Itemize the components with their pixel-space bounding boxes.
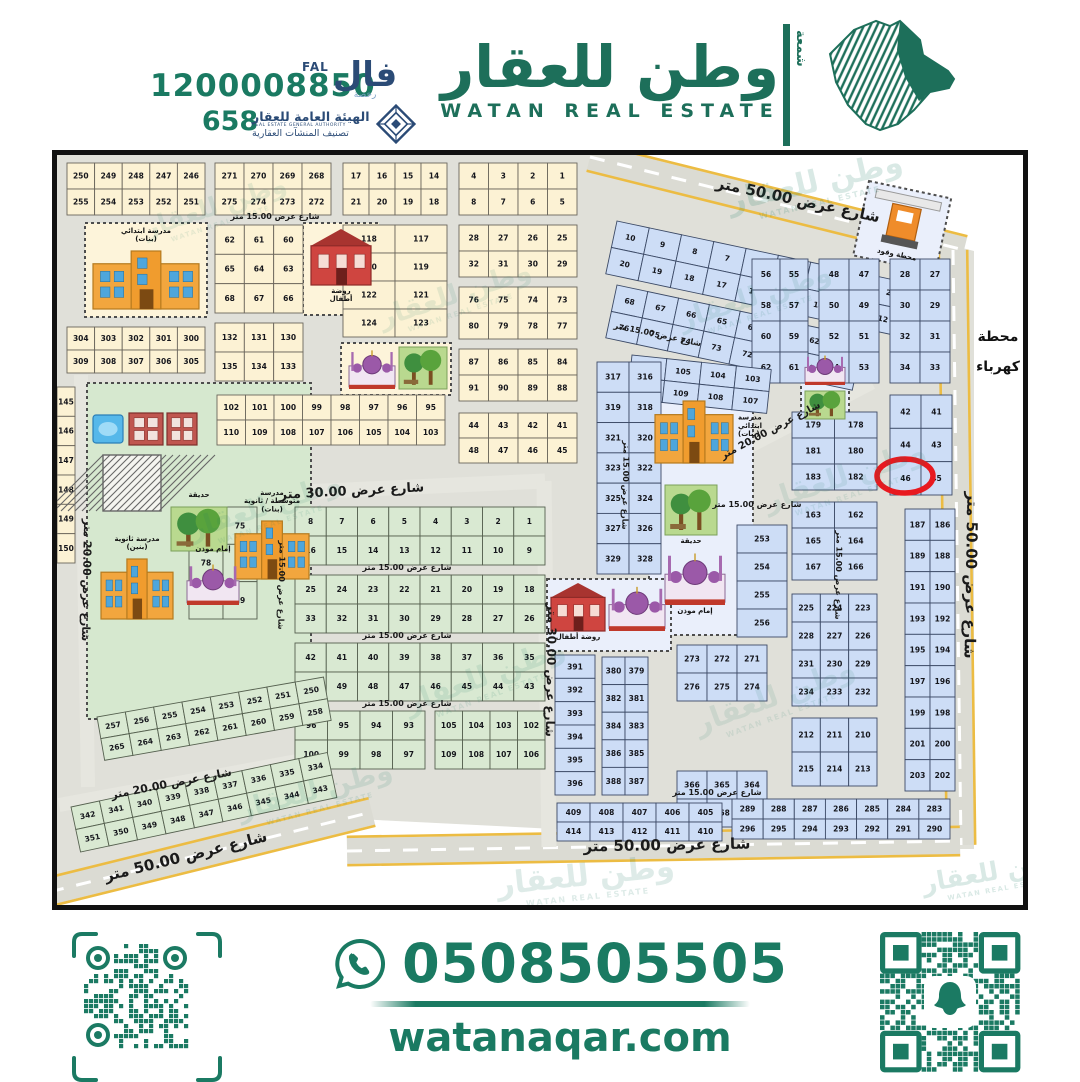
svg-text:102: 102 [523,721,539,730]
svg-text:103: 103 [423,428,439,437]
svg-text:10: 10 [493,546,503,555]
svg-text:89: 89 [528,384,538,393]
svg-text:32: 32 [337,614,347,623]
svg-text:41: 41 [337,653,347,662]
plots-map: 2502492482472462552542532522512712702692… [52,150,1028,910]
svg-text:4: 4 [433,517,438,526]
svg-text:27: 27 [498,234,508,243]
qr-code-snapchat[interactable] [876,928,1024,1076]
svg-text:393: 393 [567,709,583,718]
svg-text:117: 117 [413,235,429,244]
svg-text:384: 384 [606,722,622,731]
svg-text:30: 30 [399,614,409,623]
svg-text:284: 284 [895,805,911,814]
svg-text:134: 134 [251,362,267,371]
svg-text:275: 275 [714,683,730,692]
svg-text:164: 164 [848,537,864,546]
svg-text:12: 12 [430,546,440,555]
svg-text:192: 192 [935,614,951,623]
svg-text:252: 252 [156,198,172,207]
svg-text:107: 107 [742,395,759,406]
svg-text:18: 18 [429,198,439,207]
svg-text:99: 99 [339,750,349,759]
fal-logo-sub: رخصة [354,90,377,100]
svg-text:193: 193 [910,614,926,623]
svg-text:304: 304 [73,334,89,343]
plot-block: 25242322212019183332313029282726 [295,575,545,633]
edge-station-label: كهرباء [976,359,1021,375]
svg-text:270: 270 [251,172,267,181]
svg-text:28: 28 [900,270,910,279]
svg-text:106: 106 [523,750,539,759]
svg-text:386: 386 [606,749,622,758]
svg-text:100: 100 [280,403,296,412]
svg-text:73: 73 [557,296,567,305]
svg-text:320: 320 [637,433,653,442]
svg-text:212: 212 [798,731,814,740]
svg-text:99: 99 [312,403,322,412]
svg-text:15: 15 [337,546,347,555]
svg-text:228: 228 [798,632,814,641]
svg-text:16: 16 [377,172,387,181]
svg-text:21: 21 [430,585,440,594]
svg-text:286: 286 [833,805,849,814]
svg-text:إمام موذن: إمام موذن [677,607,712,615]
svg-text:96: 96 [397,403,407,412]
svg-text:45: 45 [462,682,472,691]
svg-text:20: 20 [377,198,387,207]
footer-phone[interactable]: 0508505505 [402,932,788,995]
svg-text:5: 5 [402,517,407,526]
svg-text:306: 306 [156,357,172,366]
svg-text:105: 105 [366,428,382,437]
svg-text:78: 78 [528,322,538,331]
svg-text:294: 294 [802,825,818,834]
authority-logo: الهيئة العامة للعقار REAL ESTATE GENERAL… [252,104,416,144]
svg-text:1: 1 [527,517,532,526]
svg-text:33: 33 [930,363,940,372]
svg-text:178: 178 [848,421,864,430]
svg-text:17: 17 [351,172,361,181]
svg-text:42: 42 [528,421,538,430]
svg-text:68: 68 [224,294,234,303]
svg-text:196: 196 [935,677,951,686]
header: 1200008850 658 FAL فال رخصة الهيئة العام… [0,0,1080,150]
svg-text:108: 108 [280,428,296,437]
svg-text:123: 123 [413,319,429,328]
svg-text:38: 38 [430,653,440,662]
svg-text:86: 86 [498,358,508,367]
svg-text:105: 105 [675,366,692,377]
svg-text:8: 8 [471,198,476,207]
svg-text:319: 319 [605,403,621,412]
svg-text:46: 46 [900,474,910,483]
svg-text:33: 33 [305,614,315,623]
svg-text:413: 413 [599,827,615,836]
brand-divider-bar [783,24,790,146]
svg-text:272: 272 [714,655,730,664]
svg-text:291: 291 [895,825,911,834]
svg-text:57: 57 [789,301,799,310]
svg-text:288: 288 [771,805,787,814]
svg-text:250: 250 [73,172,89,181]
svg-text:74: 74 [528,296,538,305]
svg-text:84: 84 [557,358,567,367]
svg-text:186: 186 [935,520,951,529]
svg-text:29: 29 [430,614,440,623]
svg-text:21: 21 [351,198,361,207]
svg-text:198: 198 [935,708,951,717]
svg-text:25: 25 [305,585,315,594]
svg-text:87: 87 [469,358,479,367]
svg-text:19: 19 [403,198,413,207]
svg-text:251: 251 [183,198,199,207]
svg-text:(بنات): (بنات) [135,235,157,243]
svg-text:256: 256 [754,619,770,628]
svg-text:292: 292 [864,825,880,834]
plot-block: 1871861891881911901931921951941971961991… [905,509,955,791]
svg-text:131: 131 [251,333,267,342]
svg-text:105: 105 [441,721,457,730]
plot-block: 105104103102109108107106 [435,711,545,769]
water-icon [93,415,123,443]
svg-text:414: 414 [566,827,582,836]
plot-block: 273272271276275274 [677,645,767,701]
svg-text:40: 40 [368,653,378,662]
svg-text:مدرسة: مدرسة [738,414,762,422]
svg-text:133: 133 [281,362,297,371]
svg-text:167: 167 [805,563,821,572]
svg-text:407: 407 [632,808,648,817]
fal-logo-ar: فال [333,60,398,90]
svg-text:214: 214 [827,765,843,774]
svg-text:98: 98 [371,750,381,759]
svg-text:308: 308 [101,357,117,366]
brand-name-en: WATAN REAL ESTATE [440,100,779,122]
svg-text:18: 18 [524,585,534,594]
plot-block: 8786858491908988 [459,349,577,401]
svg-text:79: 79 [498,322,508,331]
svg-text:382: 382 [606,694,622,703]
svg-text:147: 147 [58,456,74,465]
svg-text:28: 28 [462,614,472,623]
svg-text:52: 52 [829,332,839,341]
svg-text:323: 323 [605,464,621,473]
svg-text:247: 247 [156,172,172,181]
svg-text:180: 180 [848,447,864,456]
svg-text:حديقة: حديقة [681,537,702,545]
plot-block: 250249248247246255254253252251 [67,163,205,215]
svg-text:322: 322 [637,464,653,473]
qr-code-left[interactable] [72,932,222,1082]
svg-text:1: 1 [560,172,565,181]
svg-text:75: 75 [498,296,508,305]
svg-text:194: 194 [935,646,951,655]
svg-text:392: 392 [567,686,583,695]
svg-text:2: 2 [530,172,535,181]
svg-text:121: 121 [413,291,429,300]
svg-text:65: 65 [224,265,234,274]
svg-text:409: 409 [566,808,582,817]
svg-text:14: 14 [368,546,378,555]
svg-text:(بنات): (بنات) [261,505,283,513]
svg-text:285: 285 [864,805,880,814]
svg-text:107: 107 [496,750,512,759]
svg-text:195: 195 [910,646,926,655]
svg-text:309: 309 [73,357,89,366]
svg-text:109: 109 [441,750,457,759]
svg-text:106: 106 [337,428,353,437]
svg-text:182: 182 [848,473,864,482]
svg-text:27: 27 [493,614,503,623]
svg-text:31: 31 [930,332,940,341]
svg-text:395: 395 [567,756,583,765]
plot-block: 42414039383736355049484746454443 [295,643,545,701]
svg-text:47: 47 [859,270,869,279]
svg-text:39: 39 [399,653,409,662]
street-label: شارع عرض 15.00 متر [361,631,451,641]
svg-text:405: 405 [698,808,714,817]
svg-text:271: 271 [744,655,760,664]
svg-text:98: 98 [340,403,350,412]
svg-text:14: 14 [429,172,439,181]
svg-text:283: 283 [927,805,943,814]
svg-text:20: 20 [462,585,472,594]
svg-text:104: 104 [710,370,727,381]
svg-text:324: 324 [637,494,653,503]
authority-name-ar: الهيئة العامة للعقار [252,110,370,123]
svg-text:109: 109 [672,388,689,399]
svg-text:119: 119 [413,263,429,272]
svg-text:408: 408 [599,808,615,817]
svg-text:101: 101 [252,403,268,412]
svg-text:269: 269 [280,172,296,181]
svg-text:328: 328 [637,554,653,563]
fal-logo-en: FAL [302,60,329,74]
svg-text:387: 387 [629,777,645,786]
footer-divider [370,1001,750,1007]
svg-text:43: 43 [931,441,941,450]
svg-text:7: 7 [501,198,506,207]
plot-block: 2827262532313029 [459,225,577,277]
svg-text:30: 30 [528,260,538,269]
plot-block: 43218765 [459,163,577,215]
svg-text:227: 227 [827,632,843,641]
svg-text:321: 321 [605,433,621,442]
svg-text:381: 381 [629,694,645,703]
svg-text:34: 34 [900,363,910,372]
svg-text:28: 28 [469,234,479,243]
svg-text:4: 4 [471,172,476,181]
svg-text:275: 275 [222,198,238,207]
svg-text:19: 19 [493,585,503,594]
svg-text:76: 76 [469,296,479,305]
svg-text:63: 63 [283,265,293,274]
svg-text:75: 75 [235,521,245,530]
street-label: شارع عرض 15.00 متر [361,563,451,573]
svg-text:187: 187 [910,520,926,529]
svg-text:179: 179 [805,421,821,430]
svg-text:305: 305 [183,357,199,366]
footer: 0508505505 watanaqar.com [0,910,1080,1080]
svg-text:31: 31 [498,260,508,269]
svg-text:90: 90 [498,384,508,393]
footer-website[interactable]: watanaqar.com [388,1015,731,1061]
street-label: شارع عرض 15.00 متر [711,500,801,510]
svg-text:300: 300 [183,334,199,343]
svg-text:268: 268 [309,172,325,181]
svg-text:229: 229 [855,660,871,669]
school-icon: مدرسةمتوسطة / ثانوية(بنات) [235,489,309,579]
plot-block: 7675747380797877 [459,287,577,339]
svg-text:24: 24 [337,585,347,594]
svg-text:254: 254 [101,198,117,207]
svg-text:44: 44 [469,421,479,430]
svg-text:50: 50 [829,301,839,310]
svg-text:3: 3 [501,172,506,181]
svg-text:130: 130 [281,333,297,342]
svg-text:191: 191 [910,583,926,592]
plot-block: 424144434645 [890,395,952,495]
svg-text:163: 163 [805,511,821,520]
svg-text:273: 273 [280,198,296,207]
svg-text:232: 232 [855,688,871,697]
plot-block: 626160656463686766 [215,225,303,313]
svg-text:روضة أطفال: روضة أطفال [556,632,601,641]
svg-text:225: 225 [798,604,814,613]
svg-text:(بنين): (بنين) [126,543,147,551]
svg-text:61: 61 [789,363,799,372]
plot-block: 2892882872862852842832962952942932922912… [732,799,950,839]
svg-text:8: 8 [308,517,313,526]
street-label: شارع عرض 20.00 متر [79,518,94,642]
brand-name-ar: وطن للعقار [441,36,779,98]
svg-text:إمام موذن: إمام موذن [195,545,230,553]
svg-text:246: 246 [183,172,199,181]
svg-text:32: 32 [900,332,910,341]
svg-text:162: 162 [848,511,864,520]
svg-text:43: 43 [498,421,508,430]
plot-block: 179178181180183182 [792,412,877,490]
svg-text:189: 189 [910,552,926,561]
street-label: شارع عرض 30.00 متر [543,602,559,737]
svg-text:44: 44 [900,441,910,450]
svg-text:108: 108 [707,392,724,403]
svg-text:271: 271 [222,172,238,181]
svg-text:388: 388 [606,777,622,786]
svg-text:203: 203 [910,771,926,780]
svg-text:أطفال: أطفال [330,294,353,303]
svg-text:394: 394 [567,732,583,741]
svg-text:329: 329 [605,554,621,563]
plot-block: 5655585760596261 [752,259,808,383]
svg-text:62: 62 [224,235,234,244]
street-label: شارع عرض 15.00 متر [361,699,451,709]
svg-text:36: 36 [493,653,503,662]
svg-text:46: 46 [528,446,538,455]
svg-text:230: 230 [827,660,843,669]
svg-text:26: 26 [528,234,538,243]
svg-text:379: 379 [629,666,645,675]
svg-text:95: 95 [339,721,349,730]
svg-text:56: 56 [761,270,771,279]
svg-text:94: 94 [371,721,381,730]
fal-logo: FAL فال رخصة [302,60,397,100]
svg-text:287: 287 [802,805,818,814]
svg-text:3: 3 [464,517,469,526]
svg-text:58: 58 [761,301,771,310]
svg-text:حديقة: حديقة [189,491,210,499]
svg-text:35: 35 [524,653,534,662]
svg-text:110: 110 [223,428,239,437]
plot-block: 1021011009998979695110109108107106105104… [217,395,445,445]
svg-text:103: 103 [496,721,512,730]
svg-text:325: 325 [605,494,621,503]
svg-text:199: 199 [910,708,926,717]
svg-text:307: 307 [128,357,144,366]
svg-text:109: 109 [252,428,268,437]
svg-text:249: 249 [101,172,117,181]
edge-station-label: محطة [978,329,1019,345]
license-phone: 1200008850 [150,68,310,104]
svg-text:43: 43 [524,682,534,691]
svg-text:47: 47 [399,682,409,691]
svg-text:135: 135 [222,362,238,371]
plot-block: 212211210215214213 [792,718,877,786]
street-label: شارع عرض 50.00 متر [582,835,750,856]
svg-text:124: 124 [361,319,377,328]
svg-text:روضة: روضة [331,287,350,295]
svg-text:327: 327 [605,524,621,533]
svg-text:53: 53 [859,363,869,372]
plot-block: 132131130135134133 [215,323,303,381]
svg-text:30: 30 [900,301,910,310]
svg-text:48: 48 [368,682,378,691]
svg-text:274: 274 [251,198,267,207]
svg-text:102: 102 [223,403,239,412]
svg-text:64: 64 [254,265,264,274]
svg-text:383: 383 [629,722,645,731]
svg-text:317: 317 [605,373,621,382]
svg-text:6: 6 [530,198,535,207]
svg-text:326: 326 [637,524,653,533]
svg-text:107: 107 [309,428,325,437]
authority-sub: تصنيف المنشآت العقارية [252,128,349,139]
svg-text:197: 197 [910,677,926,686]
svg-text:42: 42 [305,653,315,662]
svg-text:5: 5 [560,198,565,207]
svg-text:255: 255 [754,591,770,600]
svg-text:296: 296 [740,825,756,834]
svg-text:301: 301 [156,334,172,343]
svg-text:223: 223 [855,604,871,613]
plot-block: 380379382381384383386385388387 [602,657,648,795]
svg-text:406: 406 [665,808,681,817]
svg-text:13: 13 [399,546,409,555]
svg-text:66: 66 [283,294,293,303]
svg-text:201: 201 [910,740,926,749]
svg-text:274: 274 [744,683,760,692]
saudi-map-logo [800,10,970,140]
svg-text:29: 29 [930,301,940,310]
svg-text:85: 85 [528,358,538,367]
svg-text:253: 253 [754,535,770,544]
svg-text:23: 23 [368,585,378,594]
svg-text:150: 150 [58,544,74,553]
svg-text:15: 15 [403,172,413,181]
map-canvas: 2502492482472462552542532522512712702692… [57,155,1023,905]
authority-diamond-icon [376,104,416,144]
